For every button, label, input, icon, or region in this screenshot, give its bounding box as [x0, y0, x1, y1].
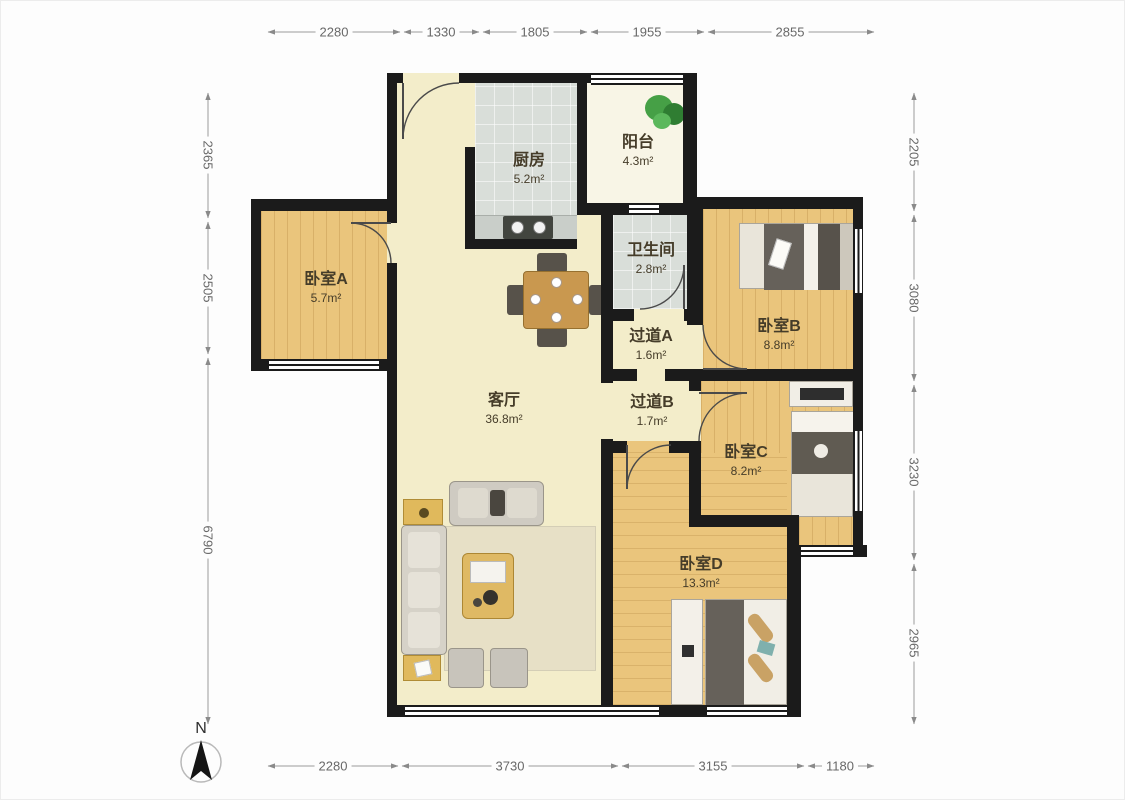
dining-table — [523, 271, 589, 329]
dim-label: 6790 — [201, 522, 216, 559]
room-label-living: 客厅 36.8m² — [485, 391, 522, 427]
stove-burner — [511, 221, 524, 234]
room-area: 2.8m² — [627, 262, 675, 278]
room-area: 8.2m² — [724, 464, 768, 480]
bed-bedroom-b — [739, 223, 855, 289]
window — [629, 203, 659, 215]
room-area: 1.7m² — [630, 414, 674, 430]
wall-segment — [605, 441, 627, 453]
wall-segment — [853, 293, 863, 381]
book-icon — [414, 660, 433, 678]
wall-segment — [251, 199, 397, 211]
dim-label: 2280 — [316, 25, 353, 40]
floor-opening-patch — [387, 223, 397, 263]
bed-blanket — [706, 600, 744, 706]
side-table — [403, 499, 443, 525]
window — [801, 545, 853, 557]
side-table — [403, 655, 441, 681]
dim-label: 1955 — [629, 25, 666, 40]
room-name: 过道A — [629, 327, 673, 348]
room-area: 1.6m² — [629, 348, 673, 364]
wall-segment — [853, 197, 863, 229]
room-name: 卧室B — [757, 317, 801, 338]
floor-plan-canvas: 2280 1330 1805 1955 2855 2280 3730 3155 … — [0, 0, 1125, 800]
bed-strip — [804, 224, 818, 290]
wall-segment — [853, 381, 863, 431]
sofa-cushion — [507, 488, 537, 518]
room-label-balcony: 阳台 4.3m² — [622, 133, 654, 169]
sofa-cushion — [408, 572, 440, 608]
dim-label: 3230 — [907, 454, 922, 491]
wall-segment — [577, 73, 587, 215]
wall-segment — [465, 239, 577, 249]
room-label-bedroom-a: 卧室A 5.7m² — [304, 270, 348, 306]
window — [269, 359, 379, 371]
dim-label: 1180 — [822, 759, 858, 774]
dim-label: 3155 — [695, 759, 732, 774]
room-label-hallway-b: 过道B 1.7m² — [630, 393, 674, 429]
coffee-table — [462, 553, 514, 619]
plate — [572, 294, 583, 305]
room-name: 厨房 — [513, 151, 545, 172]
bed-bedroom-d — [705, 599, 787, 705]
lamp-icon — [419, 508, 429, 518]
wall-segment — [387, 263, 397, 717]
throw-icon — [757, 640, 776, 656]
dim-label: 3080 — [907, 280, 922, 317]
stove-burner — [533, 221, 546, 234]
wall-segment — [691, 369, 863, 381]
dresser-bedroom-c — [789, 381, 853, 407]
plant-icon — [653, 113, 671, 129]
sofa-cushion — [408, 532, 440, 568]
room-area: 5.2m² — [513, 172, 545, 188]
wall-segment — [853, 545, 867, 557]
window — [853, 229, 863, 293]
wall-segment — [465, 147, 475, 249]
floor-opening-patch — [689, 391, 701, 441]
wall-segment — [601, 439, 613, 717]
loveseat-sofa — [449, 481, 544, 526]
wall-segment — [689, 515, 787, 527]
tray — [470, 561, 506, 583]
window — [707, 705, 787, 717]
wall-segment — [659, 705, 707, 717]
room-label-bedroom-d: 卧室D 13.3m² — [679, 555, 723, 591]
room-label-bedroom-c: 卧室C 8.2m² — [724, 443, 768, 479]
room-name: 卧室D — [679, 555, 723, 576]
north-label: N — [195, 720, 207, 738]
wall-segment — [601, 309, 634, 321]
wall-segment — [459, 73, 591, 83]
pillow-icon — [746, 651, 776, 684]
room-area: 4.3m² — [622, 154, 654, 170]
dining-chair — [537, 253, 567, 273]
long-sofa — [401, 525, 447, 655]
wardrobe-bedroom-d — [671, 599, 703, 705]
room-area: 5.7m² — [304, 291, 348, 307]
wall-segment — [787, 705, 801, 717]
wall-segment — [787, 515, 799, 545]
wall-segment — [665, 369, 691, 381]
window — [591, 73, 683, 85]
dim-label: 2505 — [201, 270, 216, 307]
floor-bedroom-c-ext — [799, 515, 853, 545]
kettle-icon — [483, 590, 498, 605]
sofa-cushion — [458, 488, 488, 518]
wall-segment — [251, 199, 261, 371]
wall-segment — [687, 203, 703, 325]
plate — [530, 294, 541, 305]
floor-opening-patch — [687, 325, 703, 369]
plate — [551, 312, 562, 323]
floor-opening-patch — [634, 309, 684, 321]
tv-icon — [800, 388, 844, 400]
room-area: 8.8m² — [757, 338, 801, 354]
room-label-kitchen: 厨房 5.2m² — [513, 151, 545, 187]
ottoman — [490, 648, 528, 688]
dining-chair — [537, 327, 567, 347]
wall-segment — [379, 359, 397, 371]
dim-label: 1805 — [517, 25, 554, 40]
bed-bedroom-c — [791, 411, 853, 517]
cup-icon — [473, 598, 482, 607]
wall-segment — [787, 545, 801, 717]
room-name: 卧室A — [304, 270, 348, 291]
room-name: 过道B — [630, 393, 674, 414]
room-area: 36.8m² — [485, 412, 522, 428]
room-name: 客厅 — [485, 391, 522, 412]
room-name: 阳台 — [622, 133, 654, 154]
north-arrow-icon — [181, 740, 221, 782]
wardrobe-handle — [682, 645, 694, 657]
floor-opening-patch — [637, 369, 665, 381]
room-name: 卫生间 — [627, 241, 675, 262]
dim-label: 2280 — [315, 759, 352, 774]
room-label-bathroom: 卫生间 2.8m² — [627, 241, 675, 277]
wall-segment — [669, 441, 701, 453]
plate — [551, 277, 562, 288]
ottoman — [448, 648, 484, 688]
sofa-cushion — [408, 612, 440, 648]
wall-segment — [689, 381, 701, 391]
dim-label: 2205 — [907, 134, 922, 171]
wall-segment — [691, 197, 863, 209]
bed-pillow-band — [792, 412, 854, 432]
floor-opening-patch — [403, 73, 459, 83]
room-name: 卧室C — [724, 443, 768, 464]
floor-opening-patch — [597, 383, 617, 439]
sofa-table — [490, 490, 505, 516]
room-label-hallway-a: 过道A 1.6m² — [629, 327, 673, 363]
dim-label: 2965 — [907, 625, 922, 662]
dim-label: 1330 — [423, 25, 460, 40]
window — [405, 705, 659, 717]
stove-icon — [503, 216, 553, 239]
dim-label: 2365 — [201, 137, 216, 174]
wall-segment — [683, 77, 697, 207]
dim-label: 2855 — [772, 25, 809, 40]
room-label-bedroom-b: 卧室B 8.8m² — [757, 317, 801, 353]
room-area: 13.3m² — [679, 576, 723, 592]
bed-strip — [818, 224, 840, 290]
window — [853, 431, 863, 511]
wall-segment — [251, 359, 269, 371]
dim-label: 3730 — [492, 759, 529, 774]
bed-dot — [814, 444, 828, 458]
wall-segment — [601, 203, 613, 383]
